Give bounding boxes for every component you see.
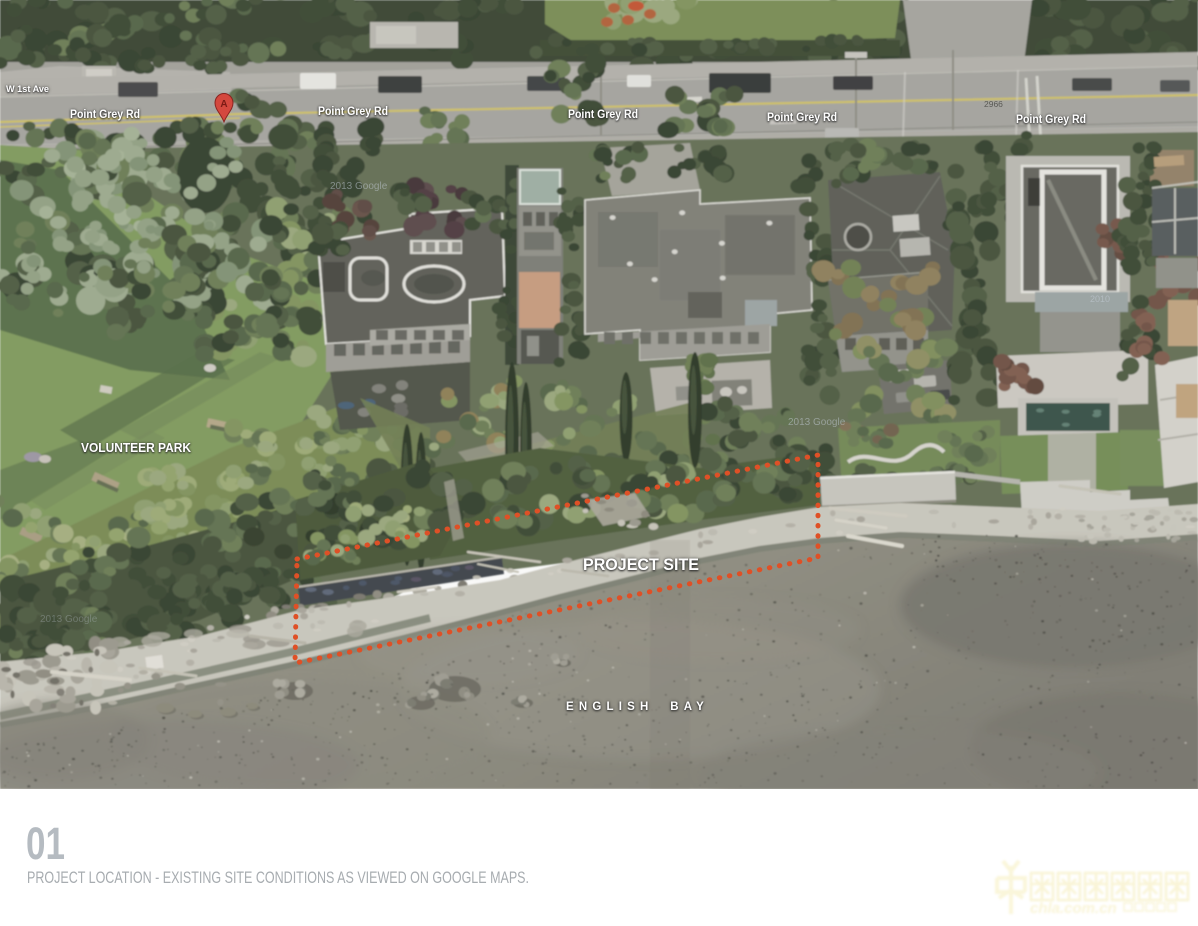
svg-text:2013 Google: 2013 Google: [788, 417, 846, 428]
svg-text:A: A: [220, 99, 227, 110]
svg-text:Point Grey Rd: Point Grey Rd: [70, 109, 140, 121]
svg-text:2013 Google: 2013 Google: [330, 181, 388, 192]
svg-text:2010: 2010: [1090, 294, 1110, 304]
svg-text:2013 Google: 2013 Google: [40, 614, 98, 625]
svg-text:PROJECT LOCATION - EXISTING SI: PROJECT LOCATION - EXISTING SITE CONDITI…: [27, 868, 529, 887]
svg-text:Point Grey Rd: Point Grey Rd: [1016, 114, 1086, 126]
svg-text:VOLUNTEER PARK: VOLUNTEER PARK: [81, 440, 191, 455]
svg-text:chla.com.cn: chla.com.cn: [1030, 900, 1117, 917]
svg-text:Point Grey Rd: Point Grey Rd: [568, 109, 638, 121]
svg-text:PROJECT SITE: PROJECT SITE: [583, 556, 699, 574]
svg-text:Point Grey Rd: Point Grey Rd: [767, 112, 837, 124]
svg-text:Point Grey Rd: Point Grey Rd: [318, 106, 388, 118]
svg-text:01: 01: [26, 818, 65, 869]
svg-text:ENGLISH BAY: ENGLISH BAY: [566, 701, 709, 713]
svg-text:2966: 2966: [984, 99, 1003, 109]
svg-text:W 1st Ave: W 1st Ave: [6, 84, 49, 95]
